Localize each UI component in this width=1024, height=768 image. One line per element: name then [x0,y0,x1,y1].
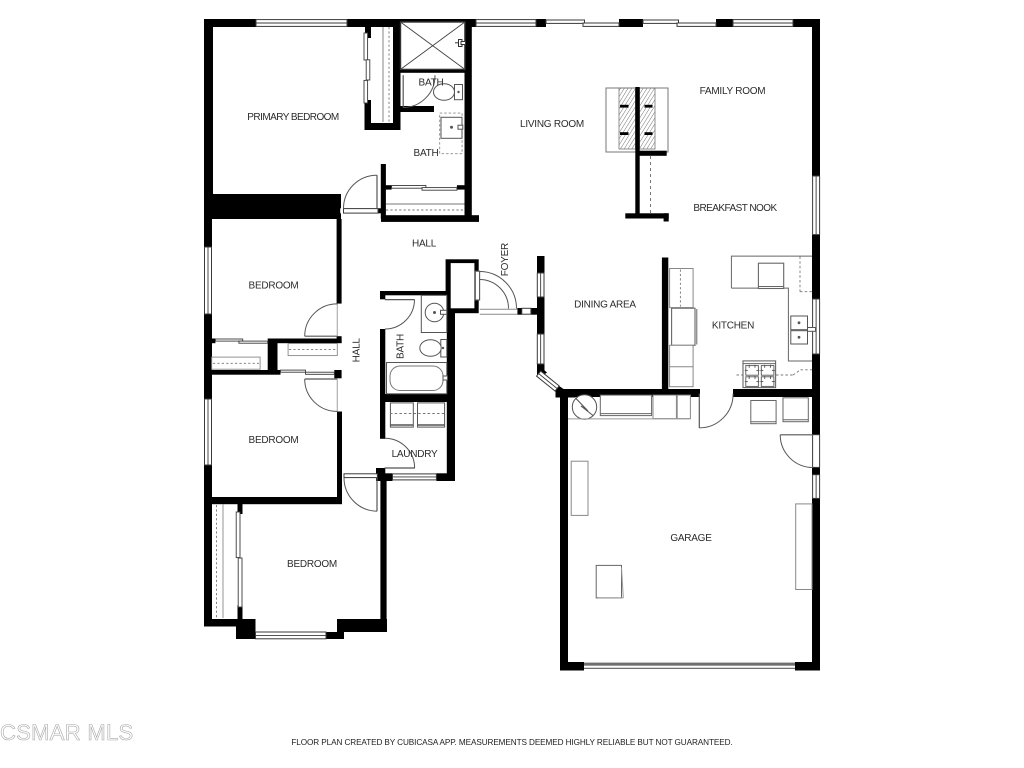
svg-text:HALL: HALL [351,338,362,363]
svg-text:LAUNDRY: LAUNDRY [392,449,438,460]
svg-text:LIVING ROOM: LIVING ROOM [520,119,584,130]
svg-text:HALL: HALL [412,239,437,250]
svg-text:BATH: BATH [414,148,439,159]
svg-text:DINING AREA: DINING AREA [574,300,636,311]
svg-text:BEDROOM: BEDROOM [249,435,299,446]
svg-text:BEDROOM: BEDROOM [249,281,299,292]
svg-text:BATH: BATH [396,334,407,359]
svg-text:FAMILY ROOM: FAMILY ROOM [700,86,766,97]
svg-text:GARAGE: GARAGE [670,533,712,544]
svg-text:BREAKFAST NOOK: BREAKFAST NOOK [693,203,777,214]
svg-text:BATH: BATH [419,78,444,89]
svg-text:FOYER: FOYER [500,243,511,276]
svg-text:PRIMARY BEDROOM: PRIMARY BEDROOM [247,112,339,123]
svg-text:KITCHEN: KITCHEN [712,321,754,332]
svg-text:BEDROOM: BEDROOM [287,559,337,570]
